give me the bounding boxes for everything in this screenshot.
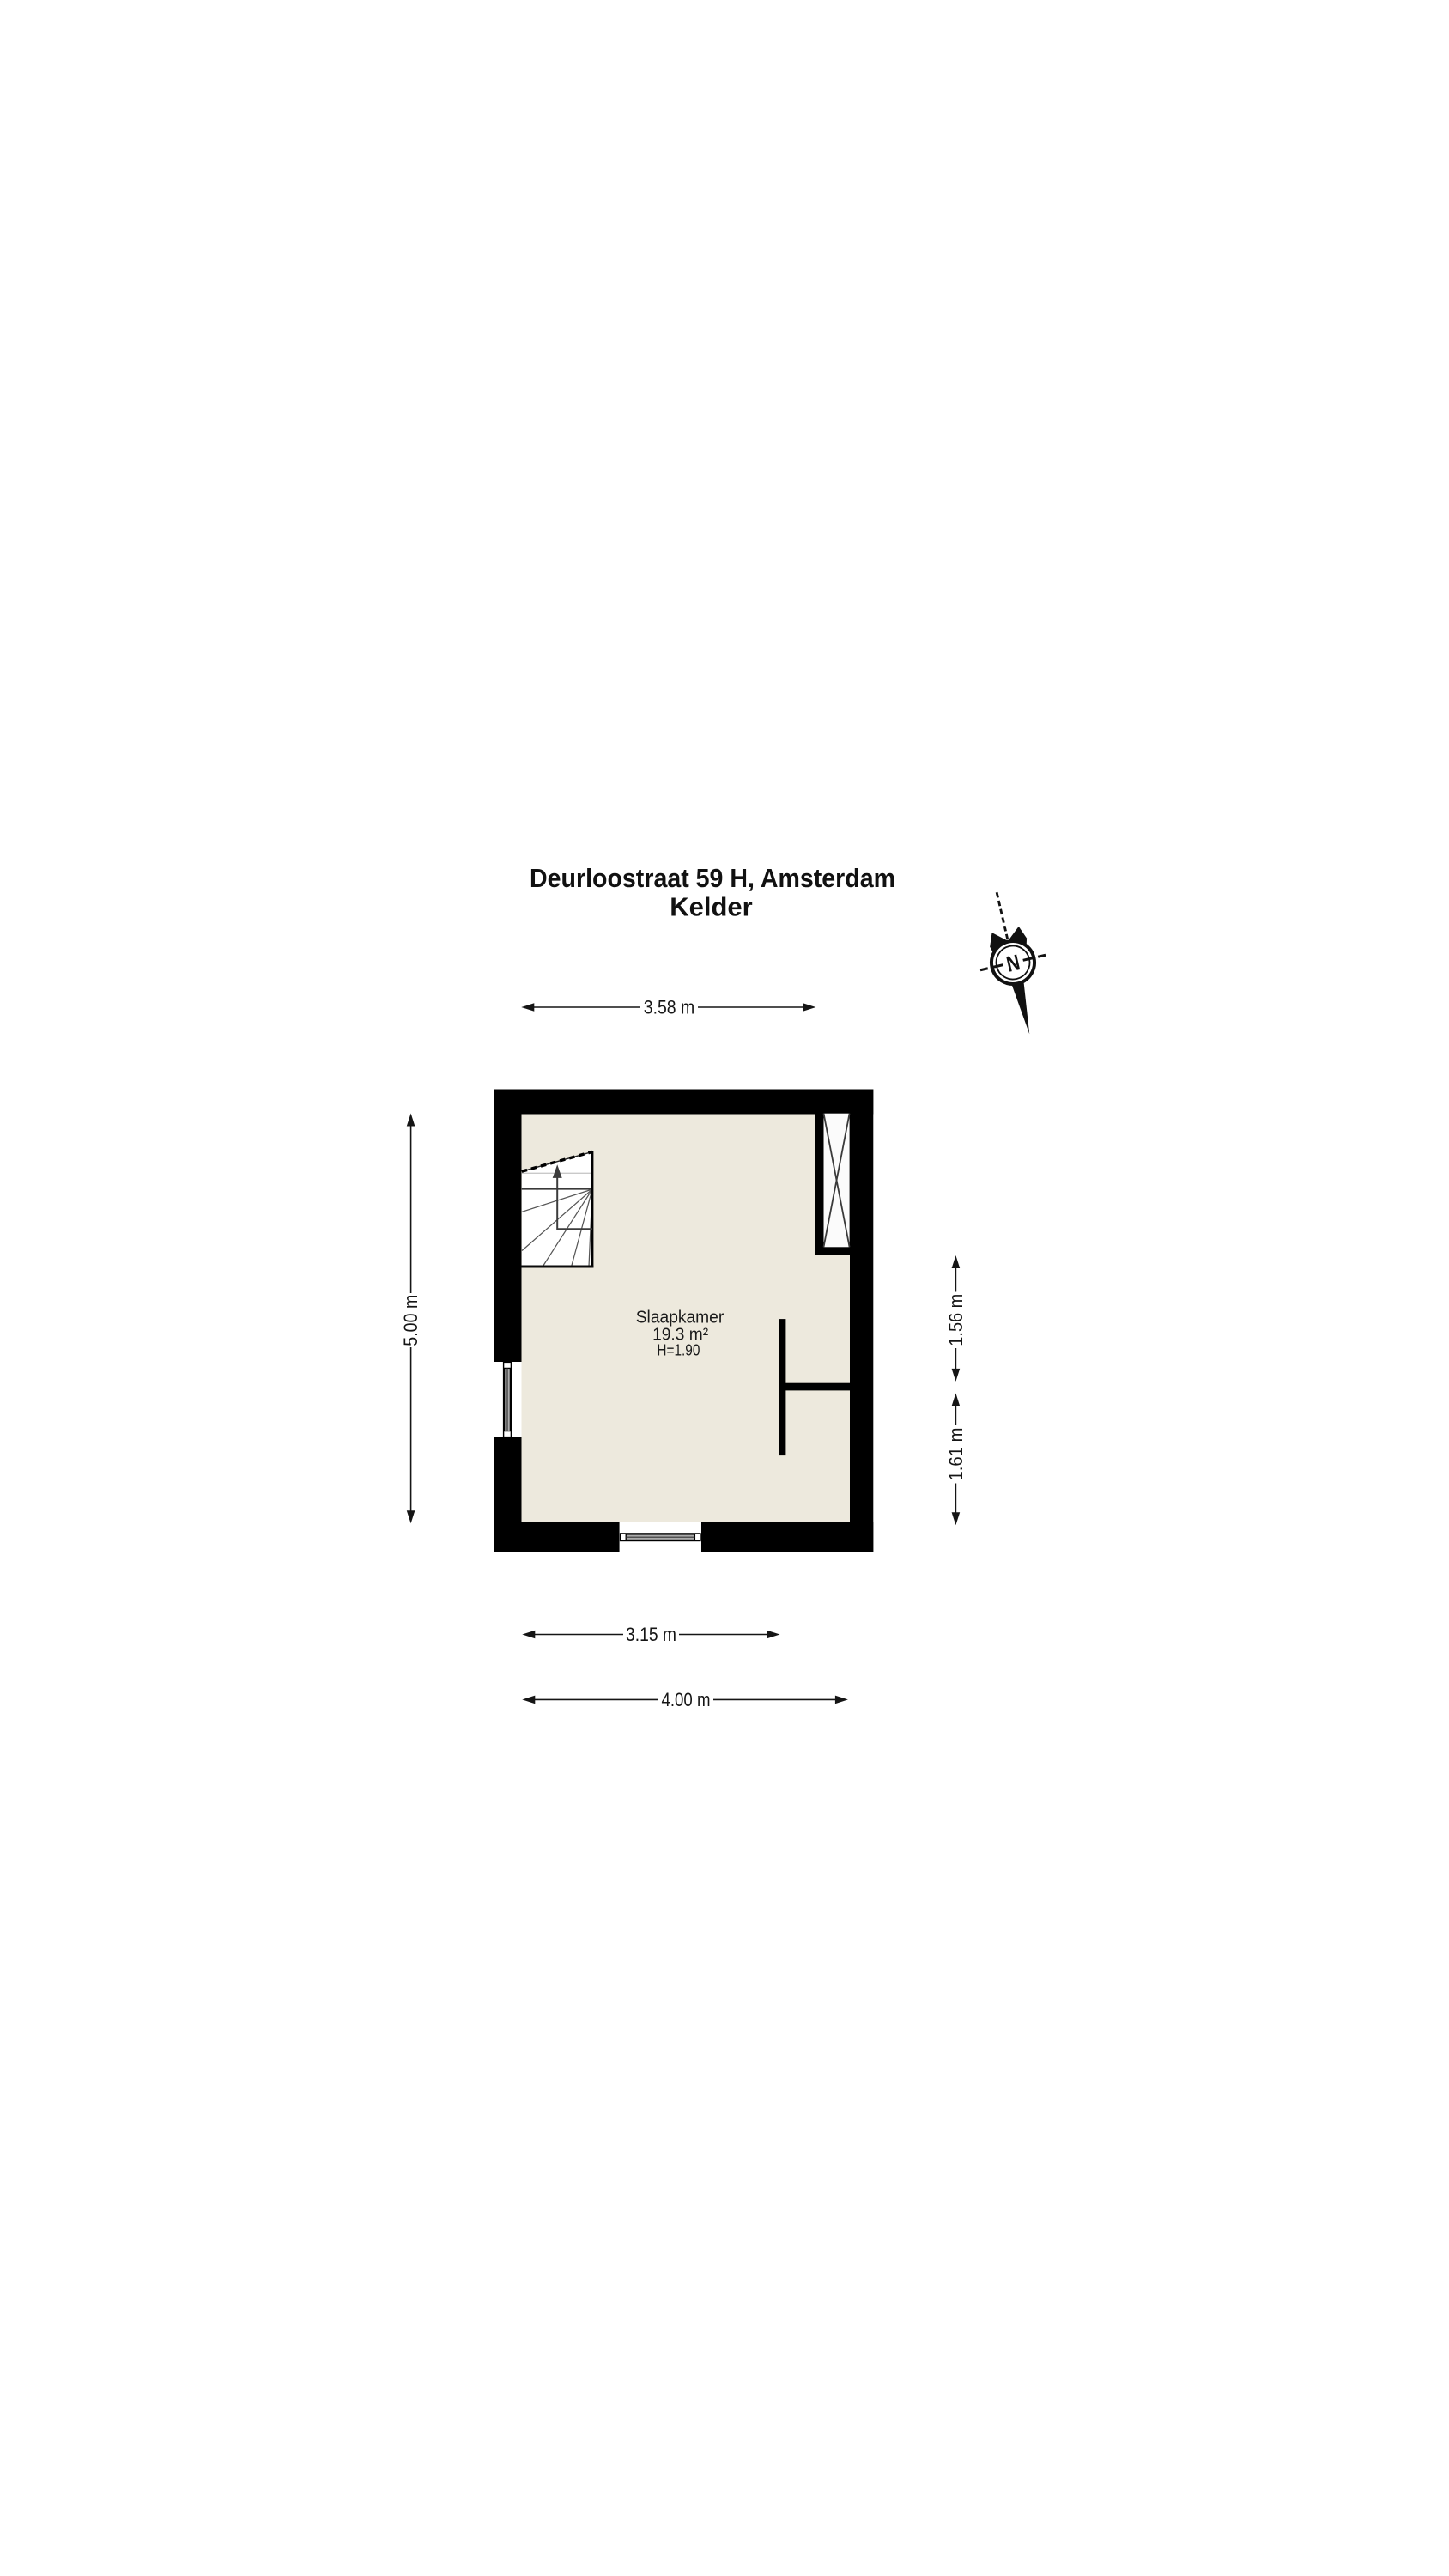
svg-text:3.58 m: 3.58 m [644,997,695,1018]
svg-text:H=1.90: H=1.90 [657,1340,700,1358]
svg-text:1.61 m: 1.61 m [945,1428,967,1481]
svg-text:4.00 m: 4.00 m [662,1689,711,1710]
svg-text:5.00 m: 5.00 m [400,1295,421,1346]
svg-text:Deurloostraat 59 H, Amsterdam: Deurloostraat 59 H, Amsterdam [530,863,895,893]
svg-text:Kelder: Kelder [670,892,752,922]
svg-text:3.15 m: 3.15 m [626,1624,676,1645]
svg-text:1.56 m: 1.56 m [945,1294,967,1346]
